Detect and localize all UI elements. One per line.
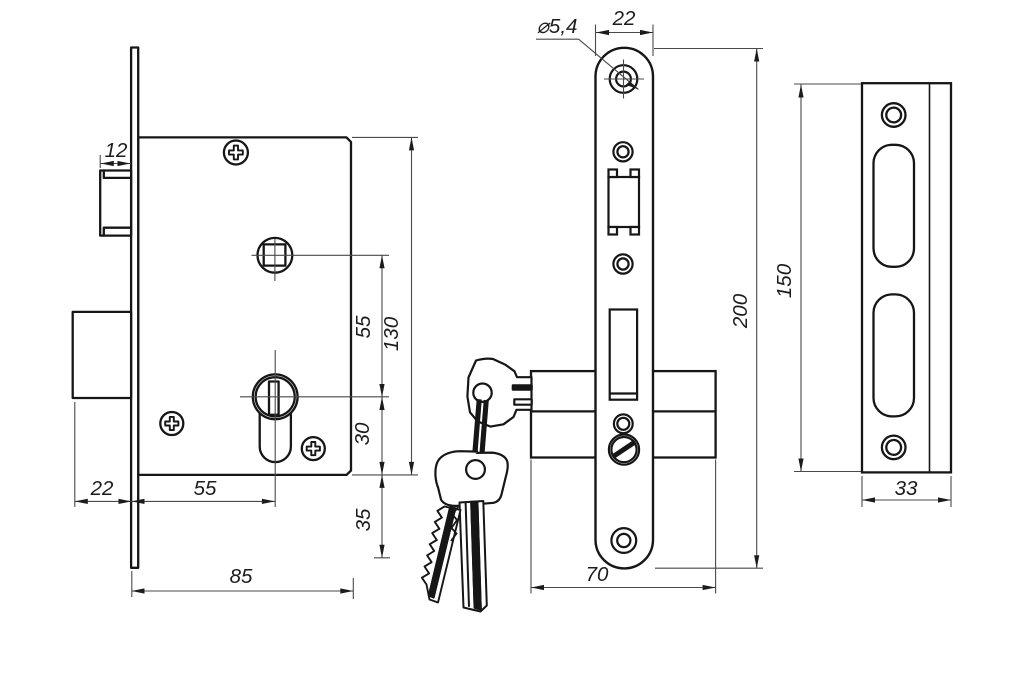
svg-text:130: 130 xyxy=(380,316,403,351)
svg-text:⌀5,4: ⌀5,4 xyxy=(537,15,578,38)
svg-text:12: 12 xyxy=(105,139,128,162)
svg-text:200: 200 xyxy=(729,293,752,329)
svg-text:33: 33 xyxy=(895,477,918,500)
svg-text:22: 22 xyxy=(90,477,114,500)
svg-text:85: 85 xyxy=(230,565,253,588)
svg-text:22: 22 xyxy=(612,7,636,30)
svg-text:55: 55 xyxy=(352,315,375,338)
svg-text:30: 30 xyxy=(351,422,374,445)
svg-text:35: 35 xyxy=(352,508,375,531)
svg-text:70: 70 xyxy=(586,563,609,586)
svg-text:150: 150 xyxy=(773,263,796,298)
svg-text:55: 55 xyxy=(194,477,217,500)
